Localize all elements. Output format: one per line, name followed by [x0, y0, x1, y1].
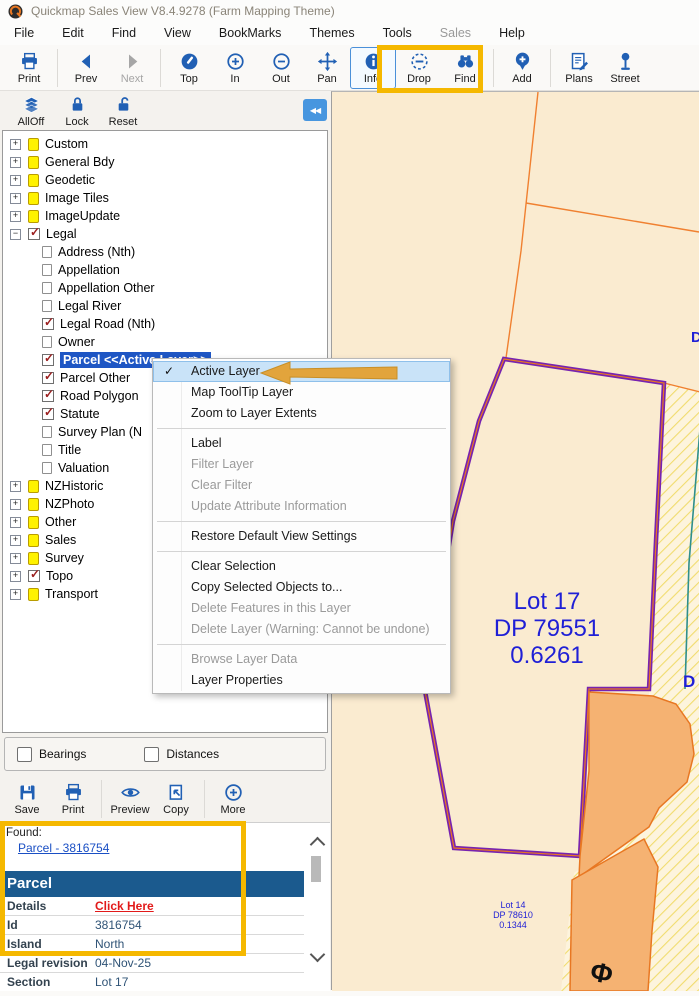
layer-icon[interactable]: [28, 516, 39, 529]
tree-item-label: Image Tiles: [45, 191, 109, 205]
tree-item-label: Other: [45, 515, 76, 529]
menu-bar-item[interactable]: BookMarks: [205, 22, 296, 45]
row-value[interactable]: North: [95, 937, 124, 951]
layer-icon[interactable]: [42, 390, 54, 402]
printer-icon: [63, 782, 84, 803]
application-window: Quickmap Sales View V8.4.9278 (Farm Mapp…: [0, 0, 699, 990]
copy-button[interactable]: Copy: [153, 778, 199, 820]
tree-item-label: Topo: [46, 569, 73, 583]
context-menu-item[interactable]: Copy Selected Objects to...: [153, 577, 450, 598]
print-button[interactable]: Print: [6, 47, 52, 89]
tree-item-label: Sales: [45, 533, 76, 547]
expander-icon[interactable]: [10, 229, 21, 240]
expander-icon[interactable]: [10, 157, 21, 168]
menu-bar-item[interactable]: File: [0, 22, 48, 45]
tree-item[interactable]: ImageUpdate: [3, 207, 327, 225]
lock-button[interactable]: Lock: [54, 90, 100, 132]
tree-item-label: Owner: [58, 335, 95, 349]
distances-checkbox[interactable]: [144, 747, 159, 762]
context-menu-item[interactable]: Layer Properties: [153, 670, 450, 691]
top-button[interactable]: Top: [166, 47, 212, 89]
expander-icon[interactable]: [10, 571, 21, 582]
toolbar-separator: [160, 49, 161, 87]
distances-checkbox-wrap[interactable]: Distances: [144, 747, 219, 762]
layer-icon[interactable]: [28, 210, 39, 223]
bearings-checkbox-wrap[interactable]: Bearings: [17, 747, 86, 762]
tree-item[interactable]: Custom: [3, 135, 327, 153]
found-panel: Found: Parcel - 3816754 Parcel Details C…: [0, 822, 330, 991]
title-bar: Quickmap Sales View V8.4.9278 (Farm Mapp…: [0, 0, 699, 22]
bearings-checkbox[interactable]: [17, 747, 32, 762]
main-toolbar: Print Prev Next Top In Out Pan: [0, 45, 699, 91]
context-menu-item[interactable]: [153, 640, 450, 649]
bearings-label: Bearings: [39, 747, 86, 761]
save-icon: [17, 782, 38, 803]
layer-icon[interactable]: [42, 246, 52, 258]
layer-icon[interactable]: [28, 192, 39, 205]
table-row: Id 3816754: [0, 916, 306, 935]
table-row: Island North: [0, 935, 306, 954]
row-label: Legal revision: [0, 956, 95, 970]
menu-bar-item[interactable]: Themes: [295, 22, 368, 45]
options-panel: Bearings Distances: [4, 737, 326, 771]
tree-item-label: Geodetic: [45, 173, 95, 187]
expander-icon[interactable]: [10, 211, 21, 222]
row-label: Section: [0, 975, 95, 989]
parcel-table-rows: Details Click Here Id 3816754 Island Nor…: [0, 897, 306, 991]
layer-icon[interactable]: [28, 588, 39, 601]
tree-item[interactable]: Legal: [3, 225, 327, 243]
parcel-table: Parcel Details Click Here Id 3816754 Isl…: [0, 871, 306, 991]
layer-icon[interactable]: [28, 570, 40, 582]
context-menu-item[interactable]: [153, 517, 450, 526]
tree-item-label: NZPhoto: [45, 497, 94, 511]
edge-label-top: D: [691, 329, 699, 346]
tree-item-label: ImageUpdate: [45, 209, 120, 223]
tree-item[interactable]: Geodetic: [3, 171, 327, 189]
layer-icon[interactable]: [42, 282, 52, 294]
tree-item-label: Parcel Other: [60, 371, 130, 385]
toolbar-separator: [57, 49, 58, 87]
tree-item-label: Title: [58, 443, 81, 457]
drop-button[interactable]: Drop: [396, 47, 442, 89]
layer-icon[interactable]: [42, 318, 54, 330]
alloff-button[interactable]: AllOff: [8, 90, 54, 132]
app-logo-icon: [8, 4, 23, 19]
street-lamp-icon: [615, 51, 636, 72]
layer-icon[interactable]: [28, 534, 39, 547]
tree-item-label: Statute: [60, 407, 100, 421]
layer-icon[interactable]: [42, 300, 52, 312]
parcel-label-lot14: Lot 14: [500, 900, 525, 910]
menu-bar-item[interactable]: Find: [98, 22, 150, 45]
expander-icon[interactable]: [10, 193, 21, 204]
menu-bar-item[interactable]: Help: [485, 22, 539, 45]
add-pin-icon: [512, 51, 533, 72]
context-menu-item[interactable]: Restore Default View Settings: [153, 526, 450, 547]
expander-icon[interactable]: [10, 553, 21, 564]
tree-item[interactable]: Image Tiles: [3, 189, 327, 207]
menu-bar-item[interactable]: Sales: [426, 22, 485, 45]
toolbar-separator: [204, 780, 205, 818]
layer-icon[interactable]: [28, 138, 39, 151]
expander-icon[interactable]: [10, 517, 21, 528]
zoom-in-button[interactable]: In: [212, 47, 258, 89]
menu-bar-item[interactable]: Edit: [48, 22, 98, 45]
tree-item-label: Appellation: [58, 263, 120, 277]
scroll-down-icon[interactable]: [310, 947, 326, 963]
row-label: Id: [0, 918, 95, 932]
context-menu-item[interactable]: Zoom to Layer Extents: [153, 403, 450, 424]
preview-button[interactable]: Preview: [107, 778, 153, 820]
tree-item-label: Legal River: [58, 299, 121, 313]
layer-icon[interactable]: [28, 480, 39, 493]
tree-item-label: Transport: [45, 587, 98, 601]
parcel-label-lot17-area: 0.6261: [510, 642, 583, 669]
drop-selection-icon: [409, 51, 430, 72]
layer-icon[interactable]: [42, 336, 52, 348]
layer-icon[interactable]: [28, 156, 39, 169]
found-scrollbar[interactable]: [304, 823, 330, 991]
context-menu-item[interactable]: Update Attribute Information: [153, 496, 450, 517]
context-menu-item[interactable]: Filter Layer: [153, 454, 450, 475]
row-label: Details: [0, 899, 95, 913]
tree-item-label: Survey: [45, 551, 84, 565]
expander-icon[interactable]: [10, 481, 21, 492]
more-button[interactable]: More: [210, 778, 256, 820]
prev-button[interactable]: Prev: [63, 47, 109, 89]
parcel-label-lot14-area: 0.1344: [499, 920, 527, 930]
context-menu-item[interactable]: Clear Filter: [153, 475, 450, 496]
tree-item[interactable]: Legal River: [3, 297, 327, 315]
tree-item[interactable]: Appellation Other: [3, 279, 327, 297]
pan-icon: [317, 51, 338, 72]
zoom-out-icon: [271, 51, 292, 72]
parcel-label-lot17: Lot 17: [514, 588, 581, 615]
distances-label: Distances: [166, 747, 219, 761]
context-menu-item[interactable]: Delete Features in this Layer: [153, 598, 450, 619]
layers-toolbar: AllOff Lock Reset: [0, 92, 330, 129]
menu-bar: FileEditFindViewBookMarksThemesToolsSale…: [0, 22, 699, 45]
print-result-button[interactable]: Print: [50, 778, 96, 820]
layer-icon[interactable]: [42, 426, 52, 438]
context-menu-item[interactable]: [153, 547, 450, 556]
layer-icon[interactable]: [42, 354, 54, 366]
tree-item-label: Survey Plan (N: [58, 425, 142, 439]
row-value[interactable]: Click Here: [95, 899, 154, 913]
row-value[interactable]: 3816754: [95, 918, 142, 932]
tree-item-label: Road Polygon: [60, 389, 139, 403]
save-button[interactable]: Save: [4, 778, 50, 820]
printer-icon: [19, 51, 40, 72]
menu-bar-item[interactable]: Tools: [369, 22, 426, 45]
layer-icon[interactable]: [42, 372, 54, 384]
zoom-out-button[interactable]: Out: [258, 47, 304, 89]
layer-icon[interactable]: [42, 444, 52, 456]
layer-icon[interactable]: [28, 498, 39, 511]
scroll-up-icon[interactable]: [310, 837, 326, 853]
tree-item[interactable]: Legal Road (Nth): [3, 315, 327, 333]
context-menu-item[interactable]: [153, 424, 450, 433]
context-menu-item[interactable]: Delete Layer (Warning: Cannot be undone): [153, 619, 450, 640]
expander-icon[interactable]: [10, 499, 21, 510]
context-menu-item[interactable]: Browse Layer Data: [153, 649, 450, 670]
eye-icon: [120, 782, 141, 803]
tree-item-label: Legal: [46, 227, 77, 241]
tree-item-label: Appellation Other: [58, 281, 155, 295]
parcel-table-header: Parcel: [0, 871, 306, 897]
toolbar-separator: [550, 49, 551, 87]
info-icon: [363, 51, 384, 72]
tree-item-label: Legal Road (Nth): [60, 317, 155, 331]
tree-item[interactable]: Owner: [3, 333, 327, 351]
tree-item-label: General Bdy: [45, 155, 114, 169]
layer-icon[interactable]: [42, 264, 52, 276]
context-menu-item[interactable]: Label: [153, 433, 450, 454]
plans-button[interactable]: Plans: [556, 47, 602, 89]
find-button[interactable]: Find: [442, 47, 488, 89]
tree-item-label: Custom: [45, 137, 88, 151]
unlock-icon: [113, 94, 134, 115]
next-button[interactable]: Next: [109, 47, 155, 89]
plans-document-icon: [569, 51, 590, 72]
expander-icon[interactable]: [10, 589, 21, 600]
scrollbar-thumb[interactable]: [311, 856, 321, 882]
layer-icon[interactable]: [28, 174, 39, 187]
row-value[interactable]: 04-Nov-25: [95, 956, 151, 970]
window-title: Quickmap Sales View V8.4.9278 (Farm Mapp…: [31, 4, 335, 18]
arrow-right-icon: [122, 51, 143, 72]
row-label: Island: [0, 937, 95, 951]
tree-item[interactable]: Appellation: [3, 261, 327, 279]
layers-icon: [21, 94, 42, 115]
menu-bar-item[interactable]: View: [150, 22, 205, 45]
layer-icon[interactable]: [42, 462, 52, 474]
layer-icon[interactable]: [28, 552, 39, 565]
copy-icon: [166, 782, 187, 803]
pan-button[interactable]: Pan: [304, 47, 350, 89]
binoculars-icon: [455, 51, 476, 72]
table-row: Section Lot 17: [0, 973, 306, 991]
layer-icon[interactable]: [42, 408, 54, 420]
tree-item[interactable]: General Bdy: [3, 153, 327, 171]
tree-item-label: Valuation: [58, 461, 109, 475]
parcel-label-lot17-dp: DP 79551: [494, 615, 600, 642]
add-button[interactable]: Add: [499, 47, 545, 89]
top-view-icon: [179, 51, 200, 72]
expander-icon[interactable]: [10, 175, 21, 186]
parcel-label-lot14-dp: DP 78610: [493, 910, 533, 920]
found-label: Found:: [0, 823, 330, 839]
context-menu-item[interactable]: Clear Selection: [153, 556, 450, 577]
context-menu-item[interactable]: Map ToolTip Layer: [153, 382, 450, 403]
zoom-in-icon: [225, 51, 246, 72]
info-button[interactable]: Info: [350, 47, 396, 89]
street-button[interactable]: Street: [602, 47, 648, 89]
reset-button[interactable]: Reset: [100, 90, 146, 132]
context-menu-item[interactable]: Active Layer: [153, 361, 450, 382]
expander-icon[interactable]: [10, 139, 21, 150]
tree-item-label: Address (Nth): [58, 245, 135, 259]
collapse-panel-button[interactable]: ◀◀: [303, 99, 327, 121]
row-value[interactable]: Lot 17: [95, 975, 128, 989]
layer-icon[interactable]: [28, 228, 40, 240]
layer-context-menu: Active Layer Map ToolTip Layer Zoom to L…: [152, 358, 451, 694]
toolbar-separator: [101, 780, 102, 818]
tree-item-label: NZHistoric: [45, 479, 103, 493]
table-row: Legal revision 04-Nov-25: [0, 954, 306, 973]
found-result-link[interactable]: Parcel - 3816754: [18, 841, 109, 855]
more-plus-icon: [223, 782, 244, 803]
expander-icon[interactable]: [10, 535, 21, 546]
toolbar-separator: [493, 49, 494, 87]
lock-icon: [67, 94, 88, 115]
table-row: Details Click Here: [0, 897, 306, 916]
edge-label-bottom: D: [683, 672, 695, 691]
result-toolbar: Save Print Preview Copy More: [0, 776, 330, 822]
tree-item[interactable]: Address (Nth): [3, 243, 327, 261]
arrow-left-icon: [76, 51, 97, 72]
